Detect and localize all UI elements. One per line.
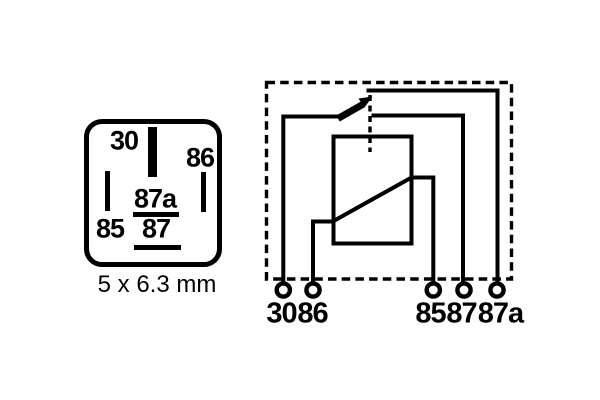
terminal-circle-87: [457, 283, 470, 296]
terminal-87a-label: 87a: [478, 299, 523, 328]
terminal-circle-30: [277, 283, 290, 296]
wire-contact-87: [372, 116, 464, 284]
switch-armature-arm: [338, 104, 364, 119]
terminal-circle-86: [306, 283, 319, 296]
terminal-30-label: 30: [266, 299, 296, 328]
relay-diagram-figure: 30 86 85 87a 87 5 x 6.3 mm: [0, 0, 600, 400]
relay-schematic: [0, 0, 600, 400]
terminal-87-label: 87: [446, 299, 476, 328]
terminal-85-label: 85: [415, 299, 445, 328]
wire-terminal-85: [412, 178, 434, 284]
terminal-86-label: 86: [297, 299, 327, 328]
coil-body-outline: [334, 137, 412, 244]
relay-housing-dashed-outline: [267, 83, 512, 280]
terminal-circle-87a: [490, 283, 503, 296]
terminal-circle-85: [427, 283, 440, 296]
coil-diagonal-line: [335, 178, 412, 221]
